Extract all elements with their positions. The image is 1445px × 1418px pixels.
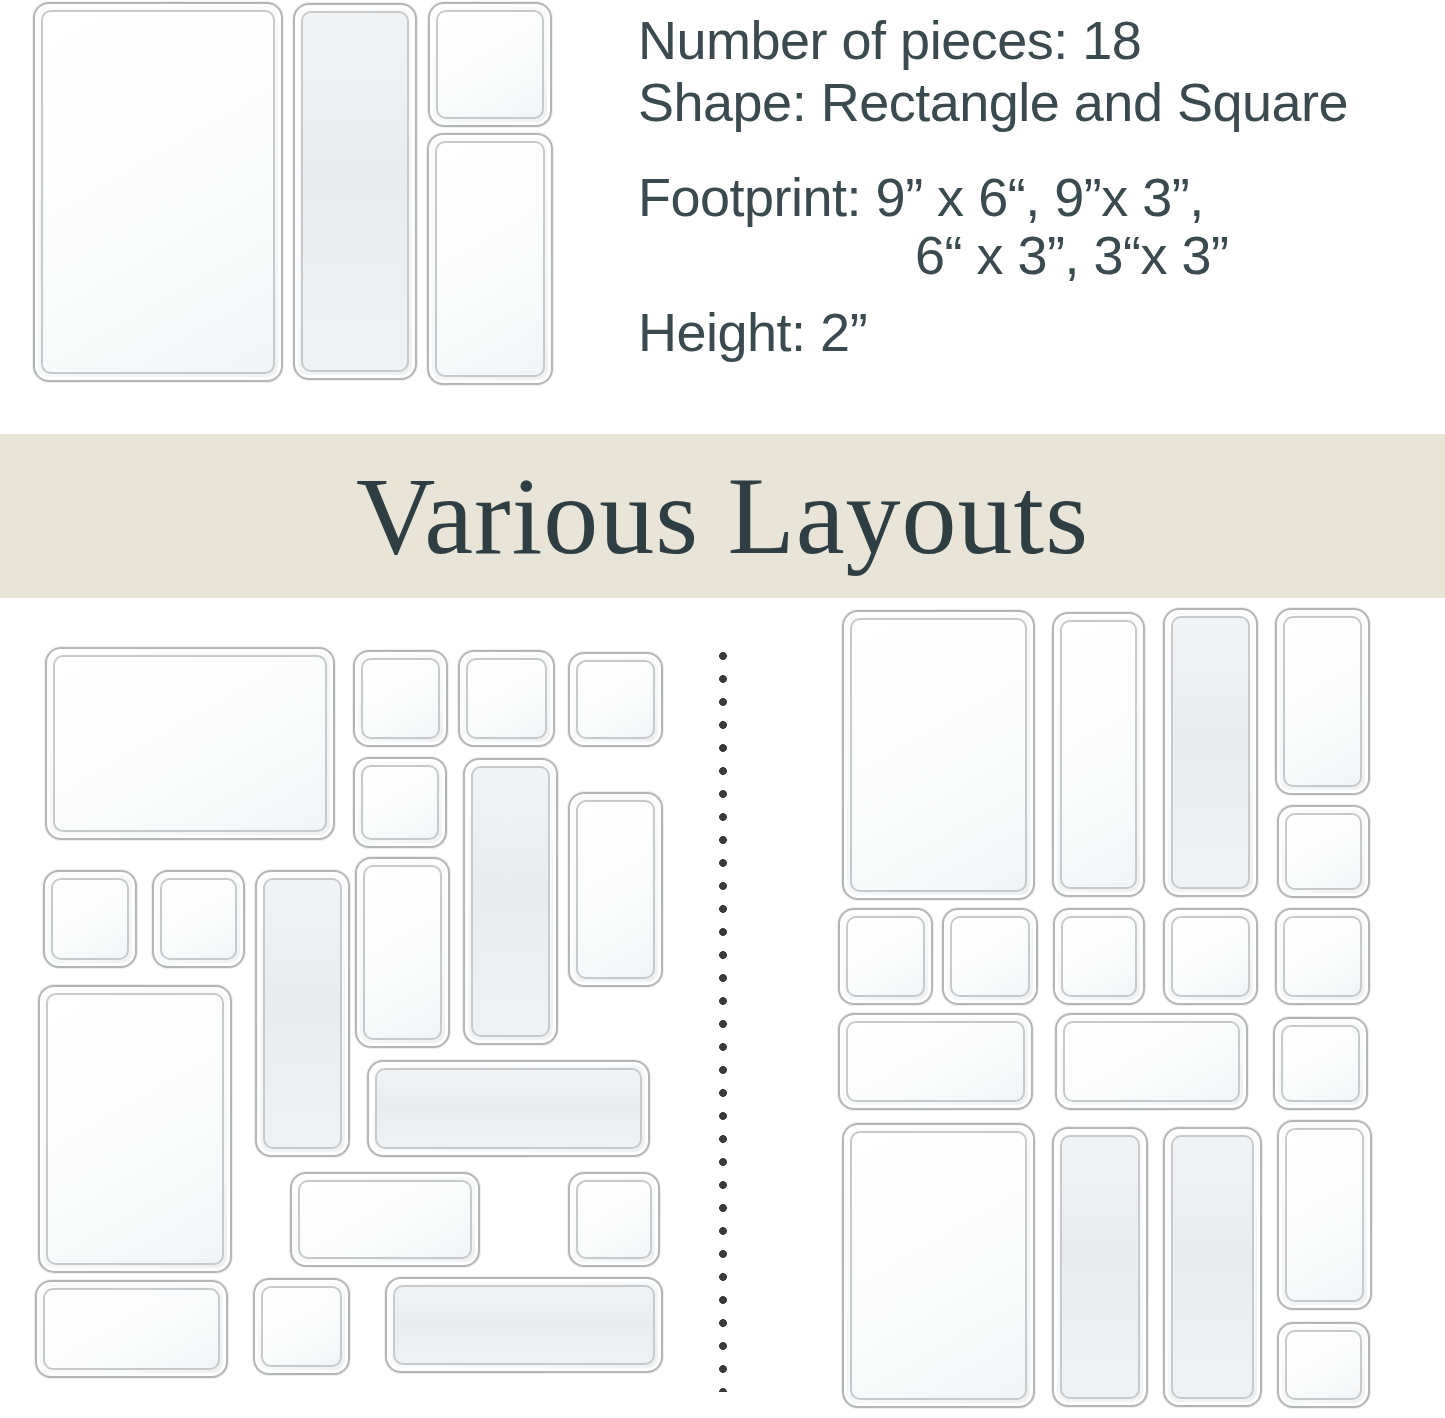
- organizer-tray-3x3: [1277, 805, 1370, 898]
- organizer-tray-3x3: [838, 908, 933, 1005]
- organizer-tray-6x3: [1275, 608, 1370, 795]
- organizer-tray-9x3: [1052, 612, 1145, 897]
- organizer-tray-9x6: [842, 610, 1035, 900]
- organizer-tray-3x3: [1163, 908, 1258, 1005]
- organizer-tray-9x6: [842, 1123, 1035, 1408]
- organizer-tray-3x3: [942, 908, 1038, 1005]
- organizer-tray-3x3: [1275, 908, 1370, 1005]
- organizer-tray-3x3: [1053, 908, 1145, 1005]
- organizer-tray-6x3: [1277, 1120, 1372, 1310]
- organizer-tray-9x3: [1052, 1127, 1148, 1407]
- organizer-tray-3x3: [1277, 1322, 1370, 1408]
- layout-example-right: [0, 0, 1445, 1418]
- organizer-tray-9x3: [1163, 1127, 1262, 1407]
- organizer-tray-9x3: [1163, 608, 1258, 897]
- organizer-tray-6x3: [838, 1013, 1033, 1110]
- organizer-tray-3x3: [1273, 1017, 1368, 1110]
- organizer-tray-6x3: [1055, 1013, 1248, 1110]
- product-infographic: Number of pieces: 18 Shape: Rectangle an…: [0, 0, 1445, 1418]
